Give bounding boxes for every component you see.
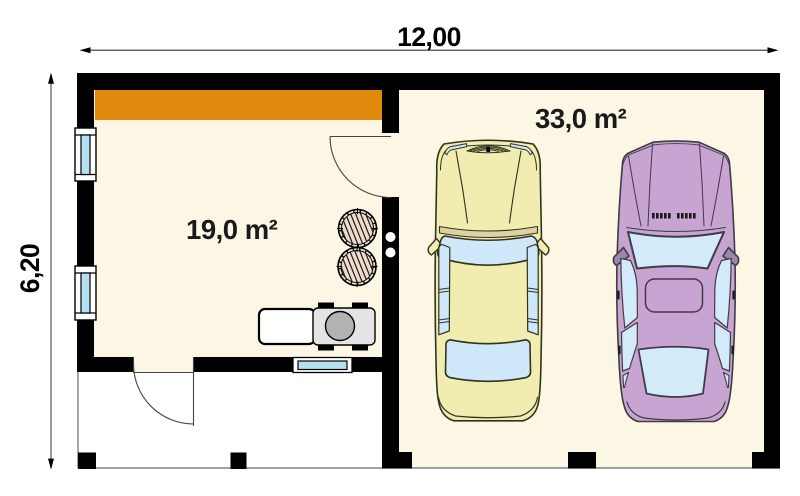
svg-text:12,00: 12,00 [397,22,461,52]
svg-text:33,0 m²: 33,0 m² [535,103,627,134]
svg-text:6,20: 6,20 [15,244,45,294]
svg-text:19,0 m²: 19,0 m² [186,214,278,245]
